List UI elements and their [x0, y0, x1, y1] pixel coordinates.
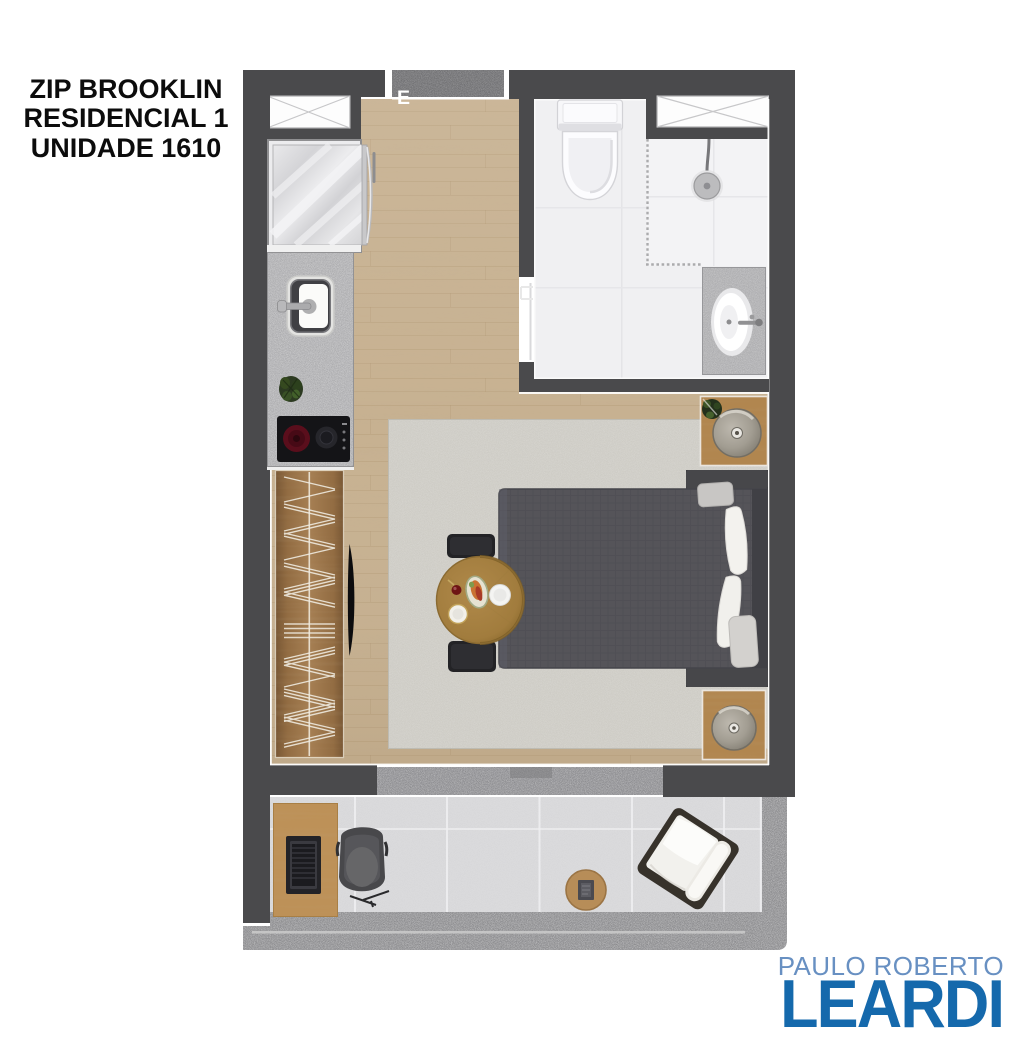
svg-text:E: E: [397, 87, 410, 109]
